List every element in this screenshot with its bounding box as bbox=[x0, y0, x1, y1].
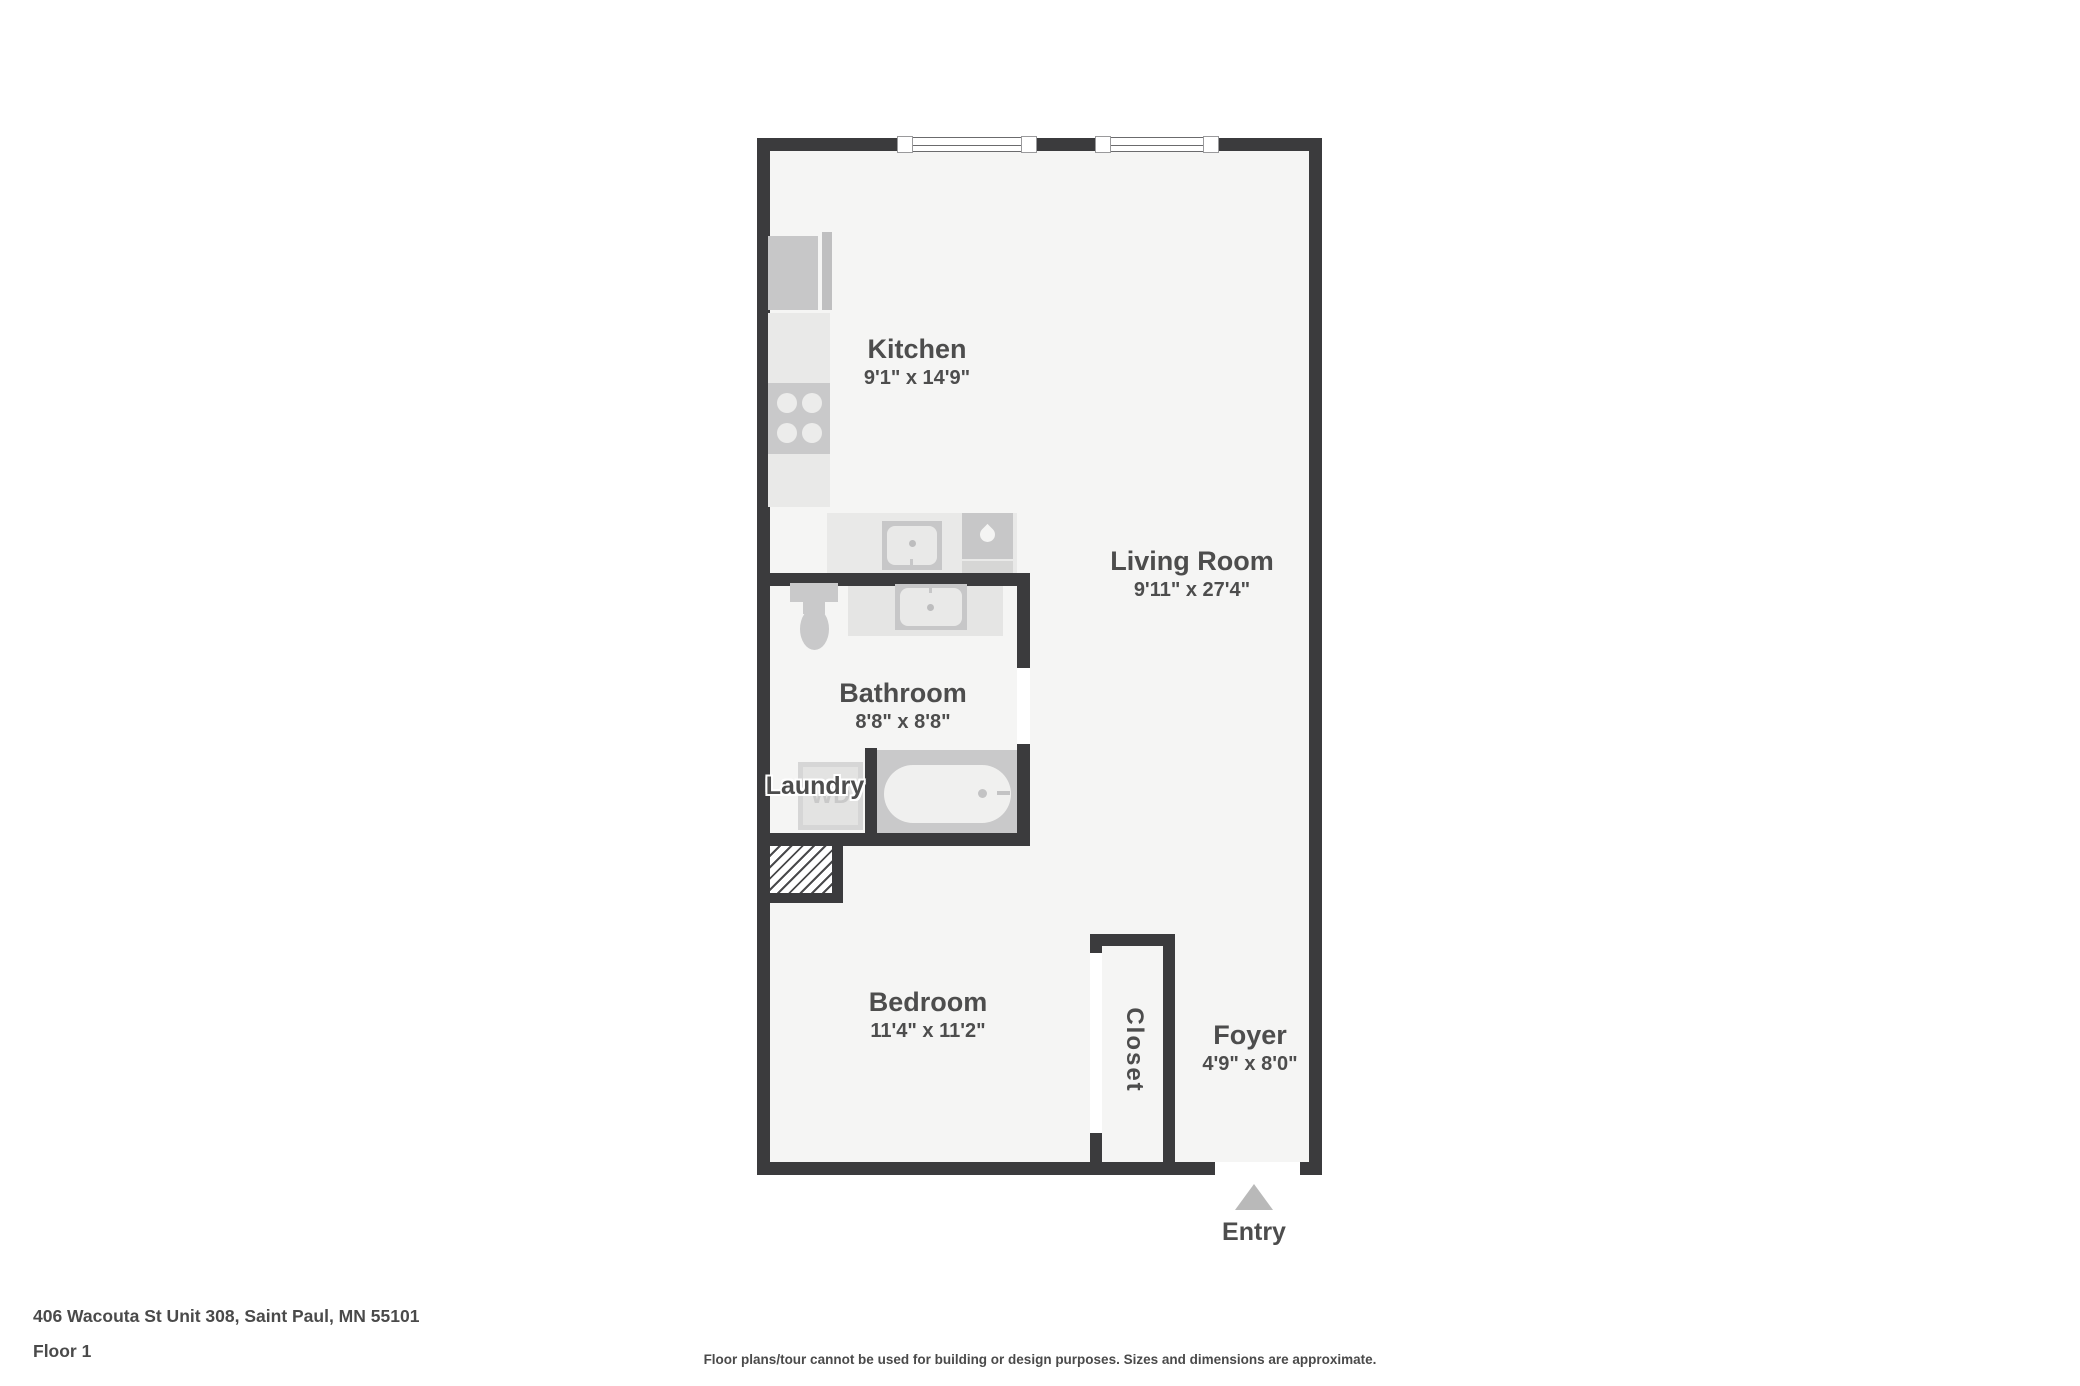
foyer-name: Foyer bbox=[1202, 1020, 1297, 1050]
stove-burner bbox=[802, 393, 822, 413]
refrigerator-handle bbox=[822, 232, 832, 310]
entry-label: Entry bbox=[1222, 1218, 1286, 1247]
window-icon bbox=[911, 137, 1023, 152]
bathroom-wall-right bbox=[1017, 573, 1030, 668]
closet-door-opening bbox=[1090, 953, 1102, 1133]
bathroom-wall-bottom bbox=[770, 833, 1030, 846]
floorplan-page: { "colors": { "wall": "#3b3b3d", "floor"… bbox=[0, 0, 2080, 1386]
window-jamb bbox=[1095, 136, 1111, 153]
dishwasher-strip bbox=[962, 561, 1013, 573]
bathroom-sink-icon bbox=[895, 584, 967, 630]
chase-wall-bottom bbox=[757, 893, 843, 903]
room-label-bathroom: Bathroom 8'8" x 8'8" bbox=[839, 678, 967, 734]
address-text: 406 Wacouta St Unit 308, Saint Paul, MN … bbox=[33, 1306, 419, 1327]
closet-wall-left bbox=[1090, 1133, 1102, 1162]
kitchen-dims: 9'1" x 14'9" bbox=[864, 366, 970, 390]
room-label-bedroom: Bedroom 11'4" x 11'2" bbox=[869, 987, 988, 1043]
kitchen-name: Kitchen bbox=[864, 334, 970, 364]
bedroom-dims: 11'4" x 11'2" bbox=[869, 1019, 988, 1043]
entry-arrow-icon bbox=[1235, 1184, 1273, 1210]
bedroom-name: Bedroom bbox=[869, 987, 988, 1017]
tub-faucet-dash bbox=[997, 791, 1010, 795]
bathroom-name: Bathroom bbox=[839, 678, 967, 708]
stove-icon bbox=[768, 383, 830, 454]
chase-hatch bbox=[770, 846, 832, 893]
window-icon bbox=[1106, 137, 1207, 152]
living-room-dims: 9'11" x 27'4" bbox=[1110, 578, 1274, 602]
dishwasher-icon bbox=[962, 513, 1013, 559]
room-label-closet: Closet bbox=[1120, 1007, 1148, 1092]
bathtub-icon bbox=[877, 750, 1017, 833]
disclaimer-text: Floor plans/tour cannot be used for buil… bbox=[0, 1352, 2080, 1367]
closet-wall-right bbox=[1163, 934, 1175, 1162]
faucet-dot bbox=[927, 604, 934, 611]
window-jamb bbox=[1203, 136, 1219, 153]
stove-burner bbox=[802, 423, 822, 443]
foyer-dims: 4'9" x 8'0" bbox=[1202, 1052, 1297, 1076]
tub-basin bbox=[884, 765, 1011, 823]
window-jamb bbox=[1021, 136, 1037, 153]
stove-burner bbox=[777, 423, 797, 443]
stove-burner bbox=[777, 393, 797, 413]
faucet-dot bbox=[909, 540, 916, 547]
closet-wall-left bbox=[1090, 934, 1102, 953]
room-label-foyer: Foyer 4'9" x 8'0" bbox=[1202, 1020, 1297, 1076]
entry-door-opening bbox=[1215, 1162, 1300, 1175]
unit-floor bbox=[770, 151, 1309, 1162]
room-label-kitchen: Kitchen 9'1" x 14'9" bbox=[864, 334, 970, 390]
bathroom-wall-right bbox=[1017, 744, 1030, 846]
window-jamb bbox=[897, 136, 913, 153]
room-label-laundry: Laundry bbox=[766, 771, 865, 801]
outer-wall-right bbox=[1309, 138, 1322, 1175]
kitchen-sink-icon bbox=[882, 521, 942, 570]
kitchen-counter bbox=[768, 454, 830, 507]
kitchen-counter bbox=[768, 313, 830, 383]
water-drop-icon bbox=[977, 524, 998, 545]
laundry-divider-wall bbox=[865, 748, 877, 833]
window-mullion bbox=[912, 145, 1022, 146]
bathroom-door-opening bbox=[1017, 668, 1030, 744]
sink-notch bbox=[929, 584, 932, 593]
outer-wall-top bbox=[757, 138, 1322, 151]
bathroom-dims: 8'8" x 8'8" bbox=[839, 710, 967, 734]
living-room-name: Living Room bbox=[1110, 546, 1274, 576]
laundry-name: Laundry bbox=[766, 771, 865, 801]
room-label-living-room: Living Room 9'11" x 27'4" bbox=[1110, 546, 1274, 602]
toilet-bowl bbox=[800, 608, 829, 650]
sink-notch bbox=[910, 559, 913, 570]
toilet-icon bbox=[790, 583, 838, 653]
window-mullion bbox=[1107, 145, 1206, 146]
floorplan-canvas: WD Kitchen 9'1" x 14'9" Living Room 9'11… bbox=[0, 0, 2080, 1386]
tub-drain-dot bbox=[978, 789, 987, 798]
refrigerator-icon bbox=[768, 236, 818, 310]
